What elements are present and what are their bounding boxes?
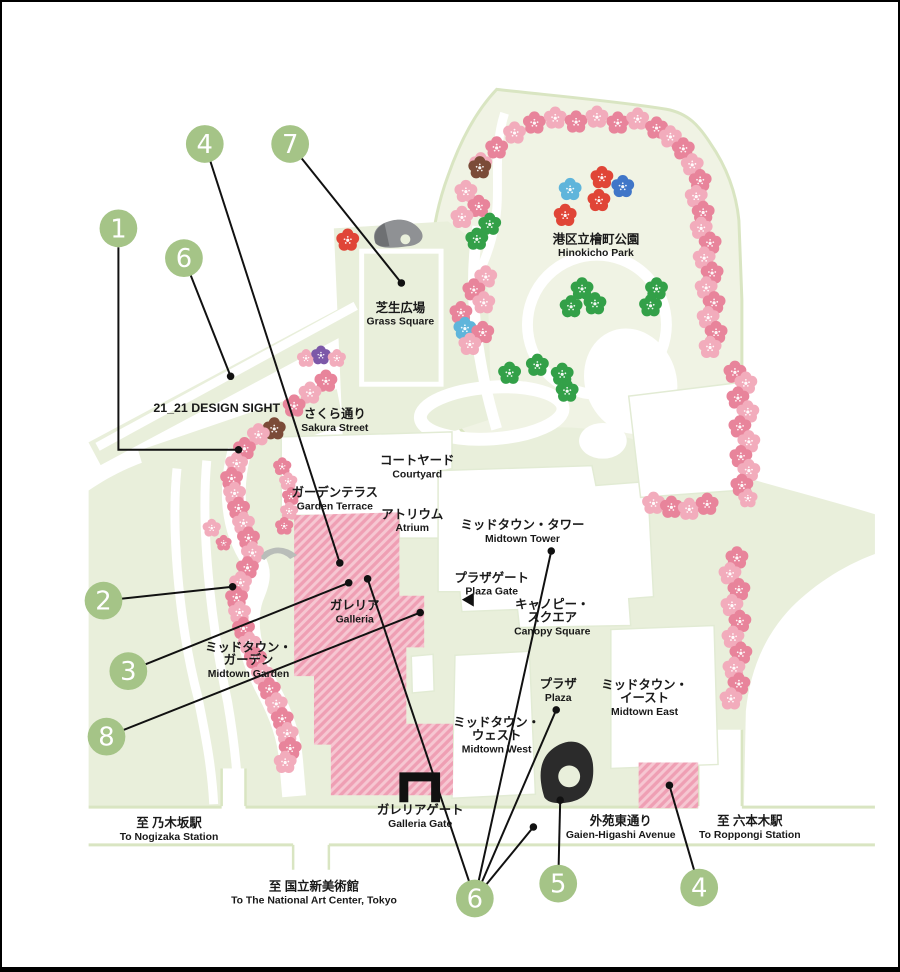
callout-target-dot	[416, 609, 424, 617]
map-label-ja: ミッドタウン・	[453, 716, 540, 730]
map-label-ja: イースト	[620, 691, 669, 705]
callout-7: 7	[271, 125, 309, 163]
map-label-en: Sakura Street	[301, 423, 369, 434]
callout-target-dot	[398, 279, 406, 287]
map-label-ja: プラザ	[540, 676, 578, 691]
map-label-hinokicho-park: 港区立檜町公園Hinokicho Park	[553, 231, 640, 259]
map-label-garden-terrace: ガーデンテラスGarden Terrace	[292, 484, 379, 512]
callout-target-dot	[552, 706, 560, 714]
map-label-grass-square: 芝生広場Grass Square	[367, 300, 435, 328]
map-label-design-sight: 21_21 DESIGN SIGHT	[153, 401, 280, 415]
map-label-en: Galleria Gate	[388, 819, 452, 830]
callout-5: 5	[539, 865, 577, 903]
callout-number: 3	[120, 657, 136, 687]
map-label-ja: 港区立檜町公園	[553, 231, 640, 246]
map-label-en: To Nogizaka Station	[120, 832, 219, 843]
map-label-en: To The National Art Center, Tokyo	[231, 895, 397, 906]
callout-number: 8	[98, 723, 114, 753]
map-label-en: Canopy Square	[514, 626, 591, 637]
map-label-en: Grass Square	[367, 317, 435, 328]
callout-target-dot	[547, 547, 555, 555]
callout-number: 6	[467, 884, 483, 914]
callout-target-dot	[666, 782, 674, 790]
callout-6: 6	[165, 239, 203, 277]
map-label-en: Plaza Gate	[465, 587, 518, 598]
map-label-ja: 外苑東通り	[590, 813, 652, 828]
callout-2: 2	[85, 582, 123, 620]
callout-number: 1	[110, 214, 126, 244]
map-label-ja: ミッドタウン・	[601, 678, 688, 692]
map-label-en: To Roppongi Station	[699, 830, 801, 841]
map-label-ja: 至 国立新美術館	[269, 879, 359, 894]
callout-4: 4	[680, 869, 718, 907]
map-label-ja: 至 乃木坂駅	[136, 815, 202, 830]
callout-target-dot	[227, 373, 235, 381]
callout-target-dot	[556, 796, 564, 804]
callout-target-dot	[364, 575, 372, 583]
map-label-to-roppongi: 至 六本木駅To Roppongi Station	[699, 813, 801, 841]
map-label-ja: ガレリア	[330, 598, 380, 613]
callout-number: 2	[95, 587, 111, 617]
feeder-road-left	[222, 768, 246, 808]
map-label-plaza-gate: プラザゲートPlaza Gate	[455, 570, 529, 598]
map-label-en: Midtown East	[611, 707, 679, 718]
map-label-ja: ガーデン	[224, 652, 274, 667]
callout-8: 8	[88, 718, 126, 756]
callout-number: 6	[176, 244, 192, 274]
map-label-ja: ミッドタウン・タワー	[461, 518, 585, 532]
callout-target-dot	[530, 823, 538, 831]
map-label-ja: ガーデンテラス	[292, 484, 379, 499]
map-label-en: Hinokicho Park	[558, 248, 634, 259]
map-label-sakura-street: さくら通りSakura Street	[301, 406, 369, 434]
map-label-ja: さくら通り	[304, 406, 366, 421]
map-label-en: Plaza	[545, 693, 572, 704]
callout-leader-line	[184, 258, 231, 376]
callout-number: 7	[282, 130, 298, 160]
map-label-en: Atrium	[396, 523, 430, 534]
map-label-en: Midtown West	[462, 745, 532, 756]
map-label-en: Garden Terrace	[297, 501, 373, 512]
callout-target-dot	[235, 446, 243, 454]
map-label-ja: ガレリアゲート	[377, 802, 464, 817]
midtown-sakura-map-page: 港区立檜町公園Hinokicho Park芝生広場Grass Square21_…	[0, 0, 900, 972]
map-label-ja: アトリウム	[381, 507, 443, 521]
callout-1: 1	[100, 209, 138, 247]
map-label-en: Courtyard	[392, 470, 442, 481]
callout-6: 6	[456, 880, 494, 918]
callout-number: 4	[197, 130, 213, 160]
callout-4: 4	[186, 125, 224, 163]
map-label-en: Midtown Tower	[485, 534, 560, 545]
callout-3: 3	[109, 652, 147, 690]
map-label-ja: 至 六本木駅	[717, 813, 783, 828]
map-label-ja: キャノピー・	[515, 598, 589, 612]
callout-target-dot	[336, 559, 344, 567]
map-label-ja: ミッドタウン・	[205, 640, 292, 654]
map-label-en: Galleria	[336, 614, 374, 625]
map-label-galleria-gate: ガレリアゲートGalleria Gate	[377, 802, 464, 830]
map-label-to-art-center: 至 国立新美術館To The National Art Center, Toky…	[231, 879, 397, 907]
map-label-ja: プラザゲート	[455, 570, 529, 585]
park-pond-2	[579, 423, 627, 459]
map-label-ja: コートヤード	[380, 454, 454, 468]
map-label-gaien-higashi: 外苑東通りGaien-Higashi Avenue	[566, 813, 676, 841]
map-label-ja: ウェスト	[472, 729, 522, 743]
map-label-ja: 21_21 DESIGN SIGHT	[153, 401, 280, 415]
map-label-en: Midtown Garden	[208, 669, 290, 680]
callout-number: 4	[691, 874, 707, 904]
map-label-to-nogizaka: 至 乃木坂駅To Nogizaka Station	[120, 815, 219, 843]
map-label-ja: 芝生広場	[376, 300, 426, 315]
callout-target-dot	[229, 583, 237, 591]
callout-target-dot	[345, 579, 353, 587]
map-label-en: Gaien-Higashi Avenue	[566, 830, 676, 841]
midtown-sakura-map: 港区立檜町公園Hinokicho Park芝生広場Grass Square21_…	[2, 2, 898, 967]
map-label-galleria: ガレリアGalleria	[330, 598, 380, 626]
map-label-ja: スクエア	[527, 611, 577, 625]
west-annex-block	[411, 654, 434, 693]
callout-number: 5	[550, 870, 566, 900]
